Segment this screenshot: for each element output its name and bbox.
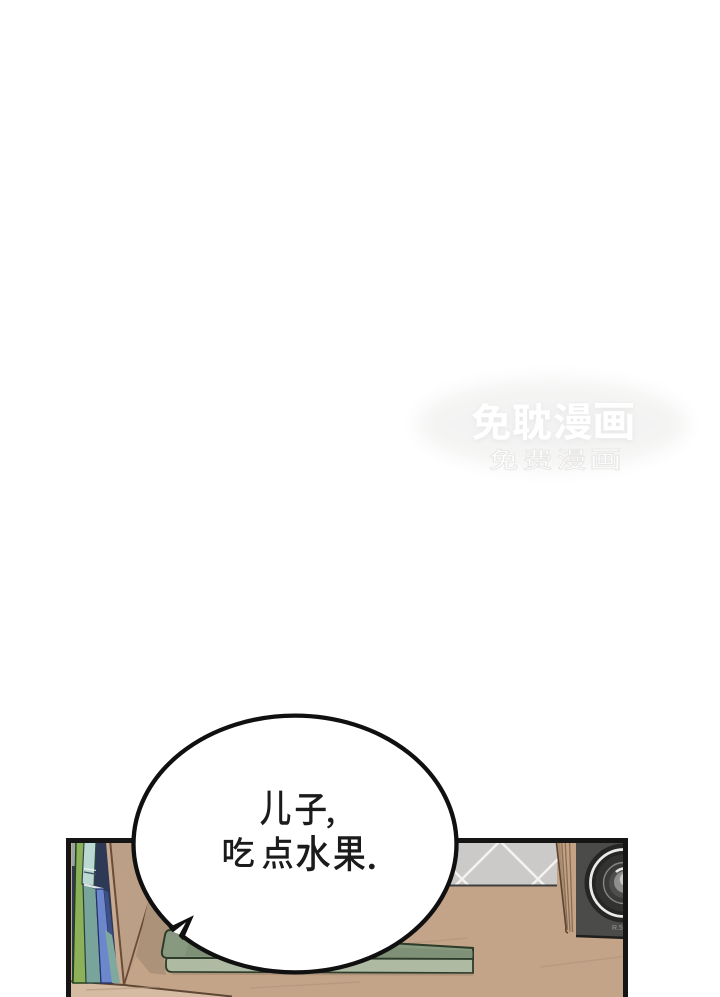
svg-text:R.5: R.5 xyxy=(612,925,623,932)
